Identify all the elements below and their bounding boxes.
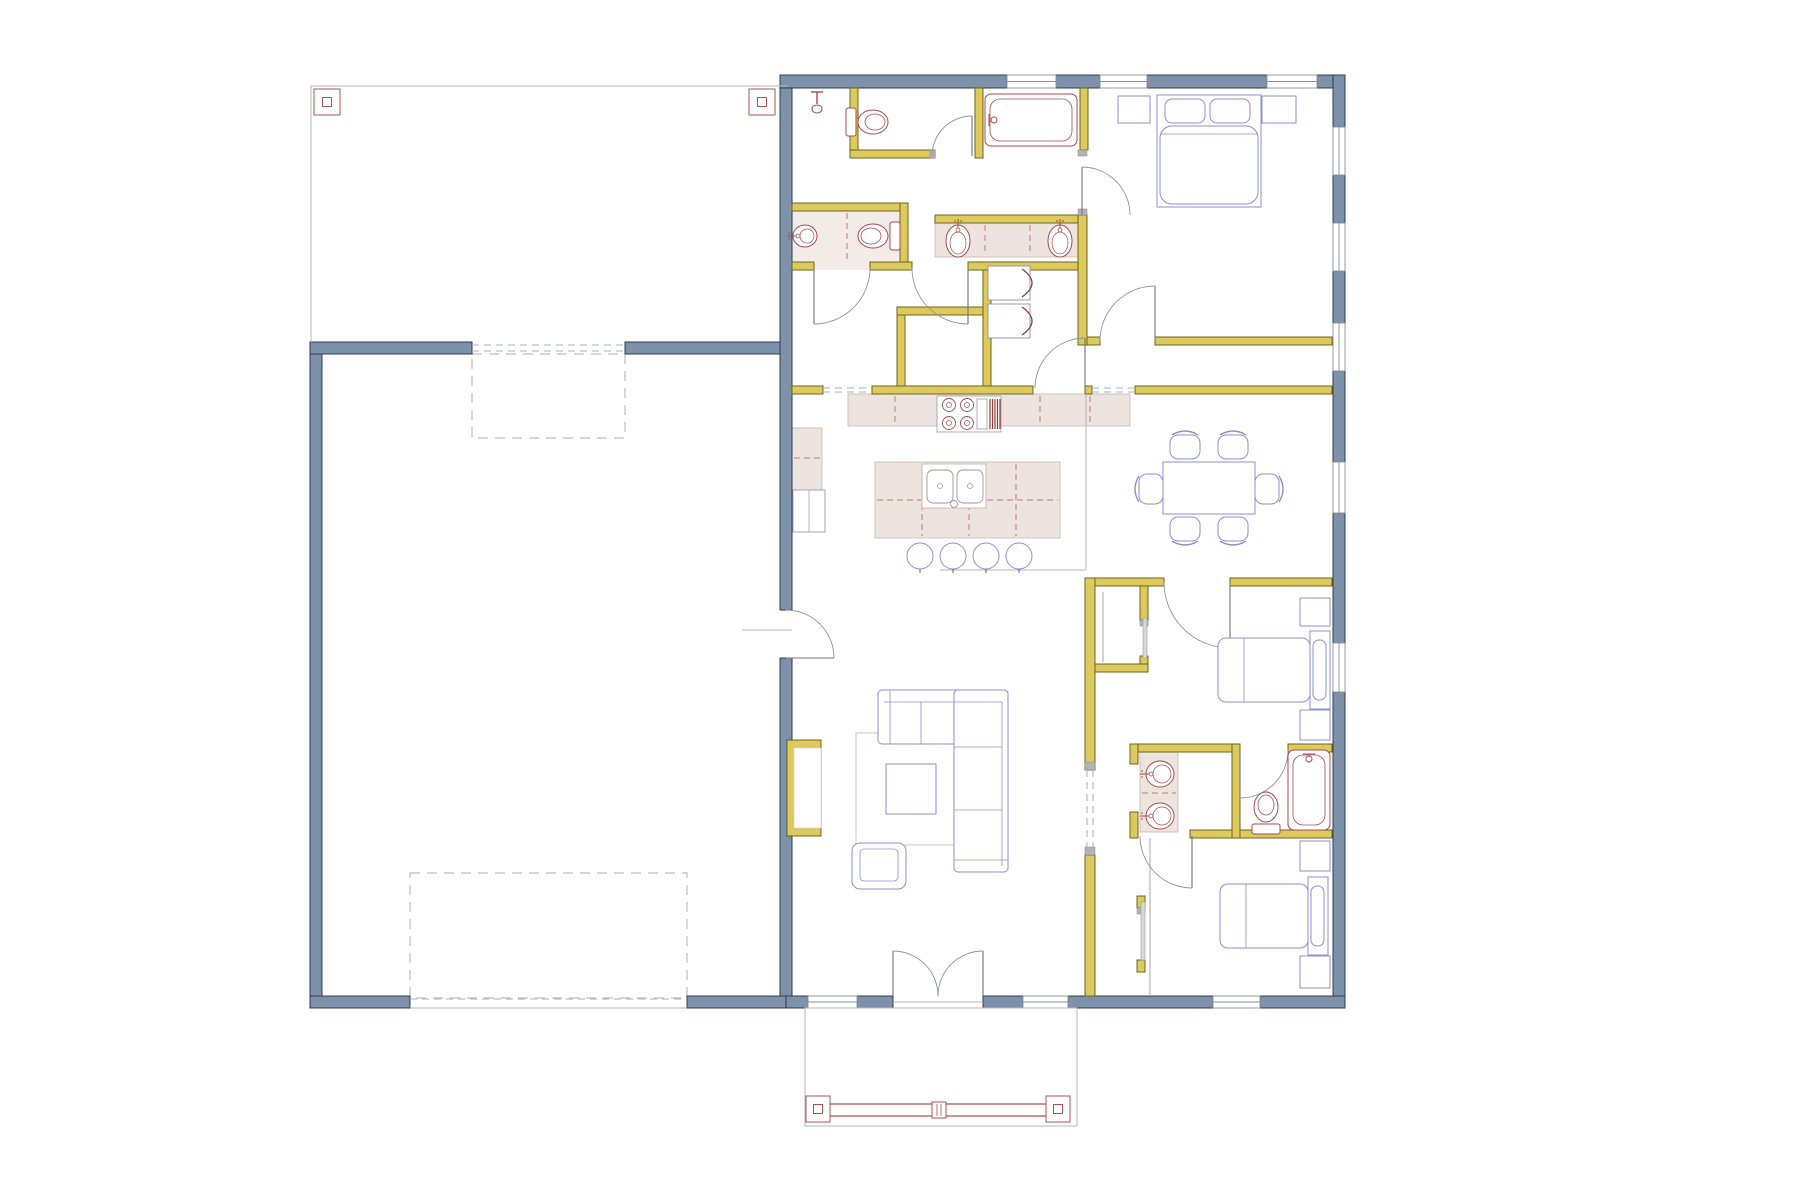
- toilet-fixture: [1252, 792, 1280, 834]
- armchair: [852, 843, 906, 889]
- floor-plan: [0, 0, 1800, 1200]
- porch: [805, 1008, 1077, 1126]
- fireplace: [787, 740, 821, 836]
- coffee-table: [886, 764, 936, 814]
- dining-set: [1135, 431, 1283, 545]
- toilet-fixture: [846, 108, 888, 136]
- dining-chair: [1218, 517, 1248, 545]
- range-cooktop: [937, 396, 1001, 432]
- carport-posts: [314, 89, 775, 115]
- dashed-openings-rects: [410, 354, 687, 998]
- dining-chair: [1135, 474, 1163, 504]
- dining-chair: [1170, 517, 1200, 545]
- toilet-fixture: [858, 222, 900, 250]
- floor-plan-canvas: [0, 0, 1800, 1200]
- fridge: [793, 490, 825, 532]
- island-sink: [922, 464, 986, 508]
- master-bed: [1157, 95, 1261, 207]
- washer-dryer: [988, 266, 1032, 338]
- dining-chair: [1170, 431, 1200, 459]
- shower-head: [811, 92, 823, 113]
- bar-stools: [907, 543, 1032, 573]
- counter: [792, 428, 822, 490]
- dining-chair: [1255, 474, 1283, 504]
- dashed-lines: [410, 345, 1135, 999]
- dining-chair: [1218, 431, 1248, 459]
